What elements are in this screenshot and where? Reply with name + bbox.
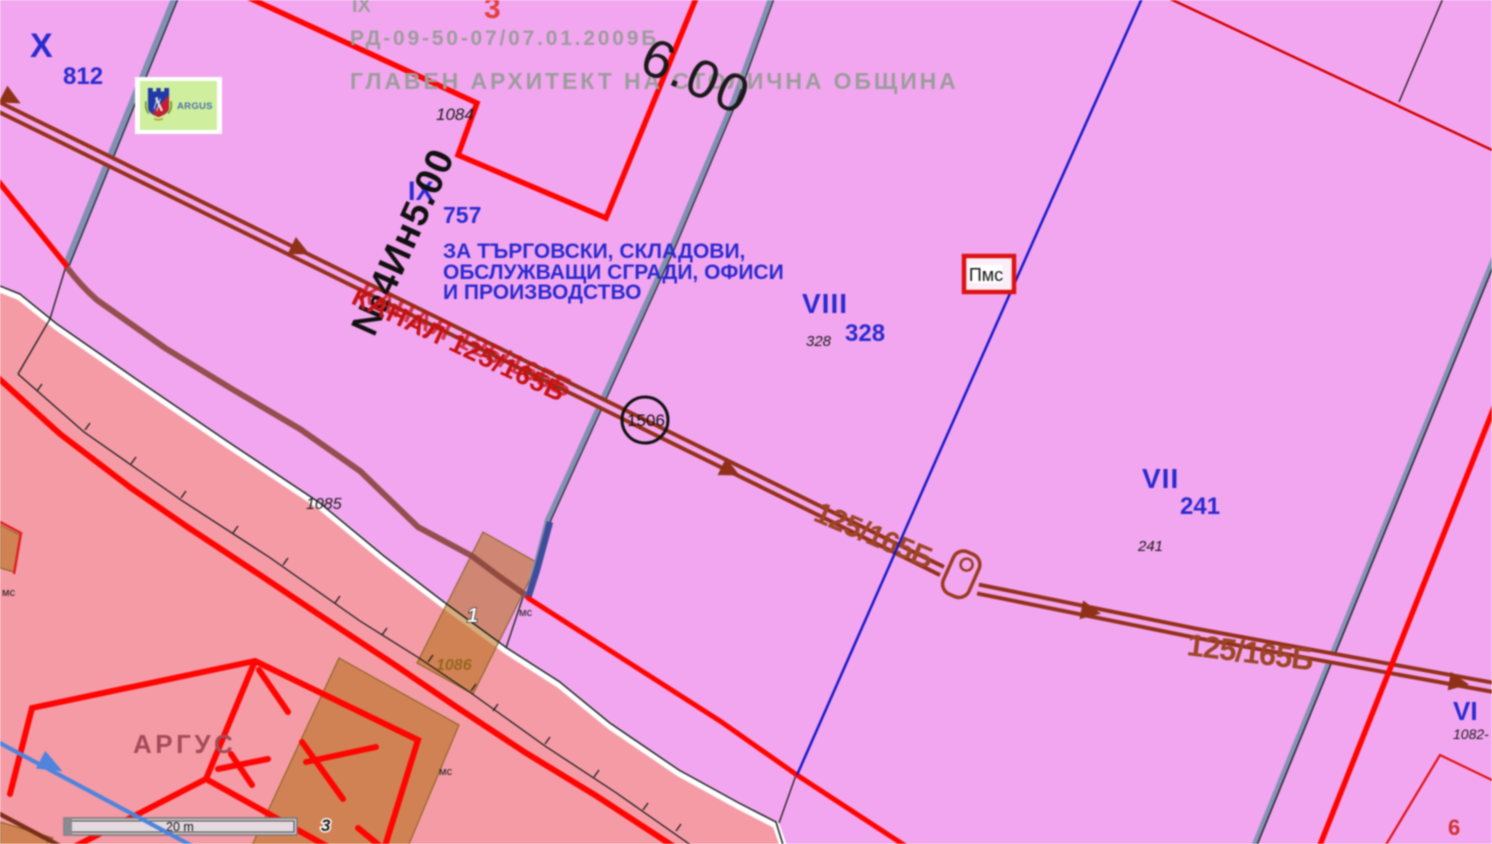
svg-text:РД-09-50-07/07.01.2009Б: РД-09-50-07/07.01.2009Б [350, 27, 659, 50]
svg-text:1: 1 [467, 605, 478, 627]
svg-text:1082-: 1082- [1453, 726, 1489, 742]
svg-text:1086: 1086 [436, 657, 472, 674]
svg-text:Пмс: Пмс [969, 265, 1003, 285]
svg-text:мс: мс [519, 607, 533, 619]
svg-text:IX: IX [352, 0, 372, 17]
svg-text:1506: 1506 [627, 411, 665, 430]
svg-text:ARGUS: ARGUS [177, 101, 213, 112]
svg-text:757: 757 [443, 202, 481, 228]
svg-text:мс: мс [439, 766, 453, 778]
svg-text:АРГУС: АРГУС [133, 729, 236, 759]
svg-text:328: 328 [845, 320, 885, 347]
svg-text:812: 812 [63, 63, 103, 90]
svg-text:1085: 1085 [306, 496, 342, 513]
svg-text:3: 3 [321, 816, 331, 835]
svg-text:241: 241 [1137, 538, 1163, 555]
svg-text:ЗА ТЪРГОВСКИ, СКЛАДОВИ,: ЗА ТЪРГОВСКИ, СКЛАДОВИ, [443, 240, 745, 263]
svg-text:3: 3 [484, 0, 501, 25]
svg-text:VIII: VIII [802, 288, 848, 319]
svg-text:328: 328 [806, 333, 832, 350]
svg-text:X: X [30, 27, 53, 65]
svg-text:6: 6 [1448, 815, 1460, 840]
svg-text:И ПРОИЗВОДСТВО: И ПРОИЗВОДСТВО [443, 281, 641, 304]
svg-text:241: 241 [1180, 493, 1220, 520]
svg-text:мс: мс [2, 587, 16, 599]
svg-text:1084: 1084 [436, 105, 474, 124]
svg-text:VII: VII [1142, 463, 1179, 494]
svg-text:VI: VI [1453, 696, 1478, 726]
